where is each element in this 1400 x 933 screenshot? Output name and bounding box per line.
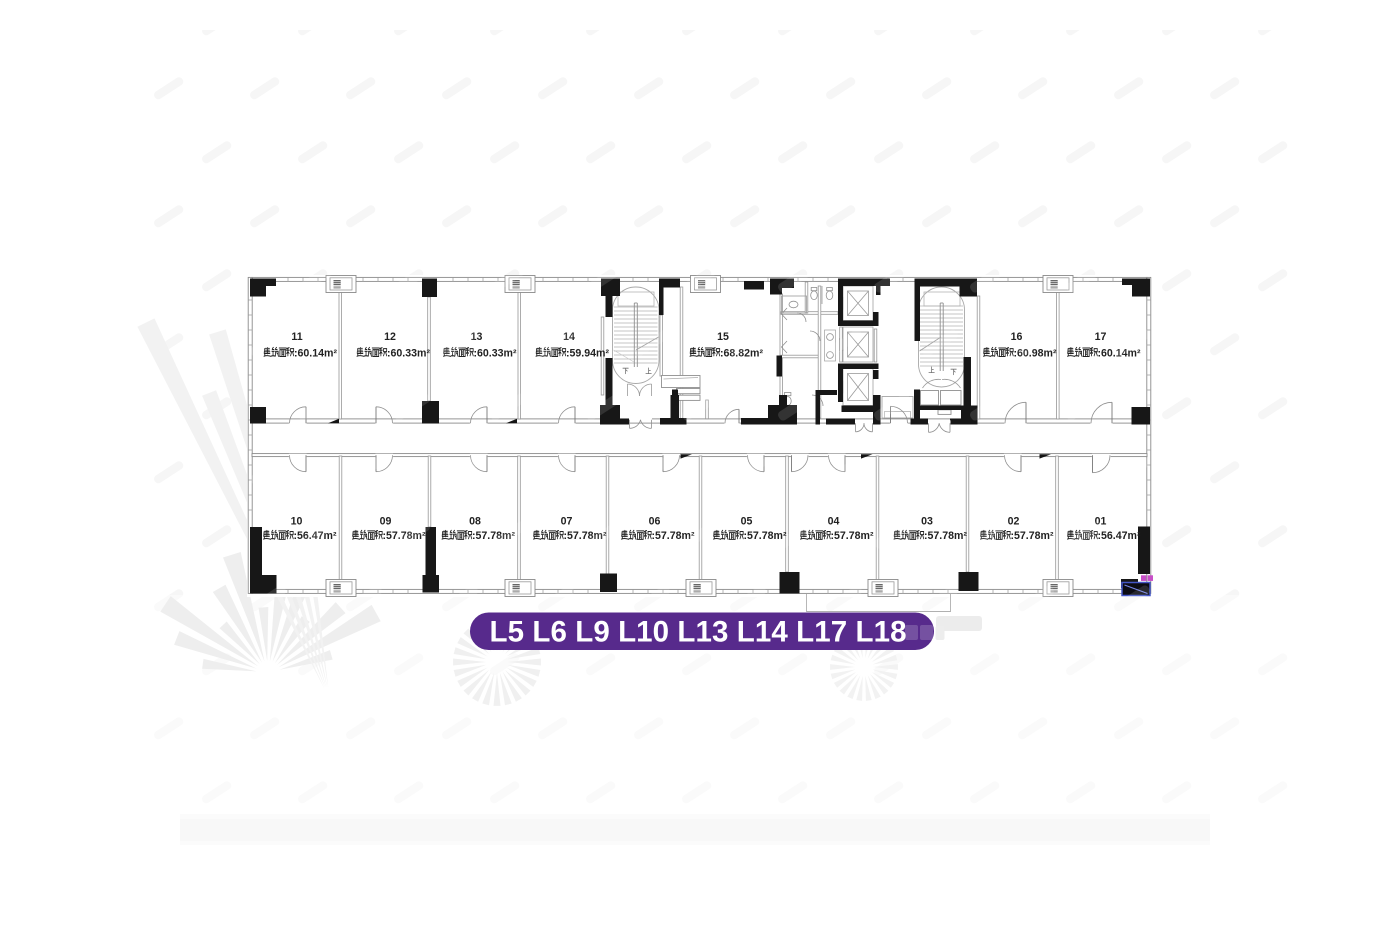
svg-text:L5 L6 L9 L10 L13 L14 L17 L18: L5 L6 L9 L10 L13 L14 L17 L18 <box>490 616 907 649</box>
